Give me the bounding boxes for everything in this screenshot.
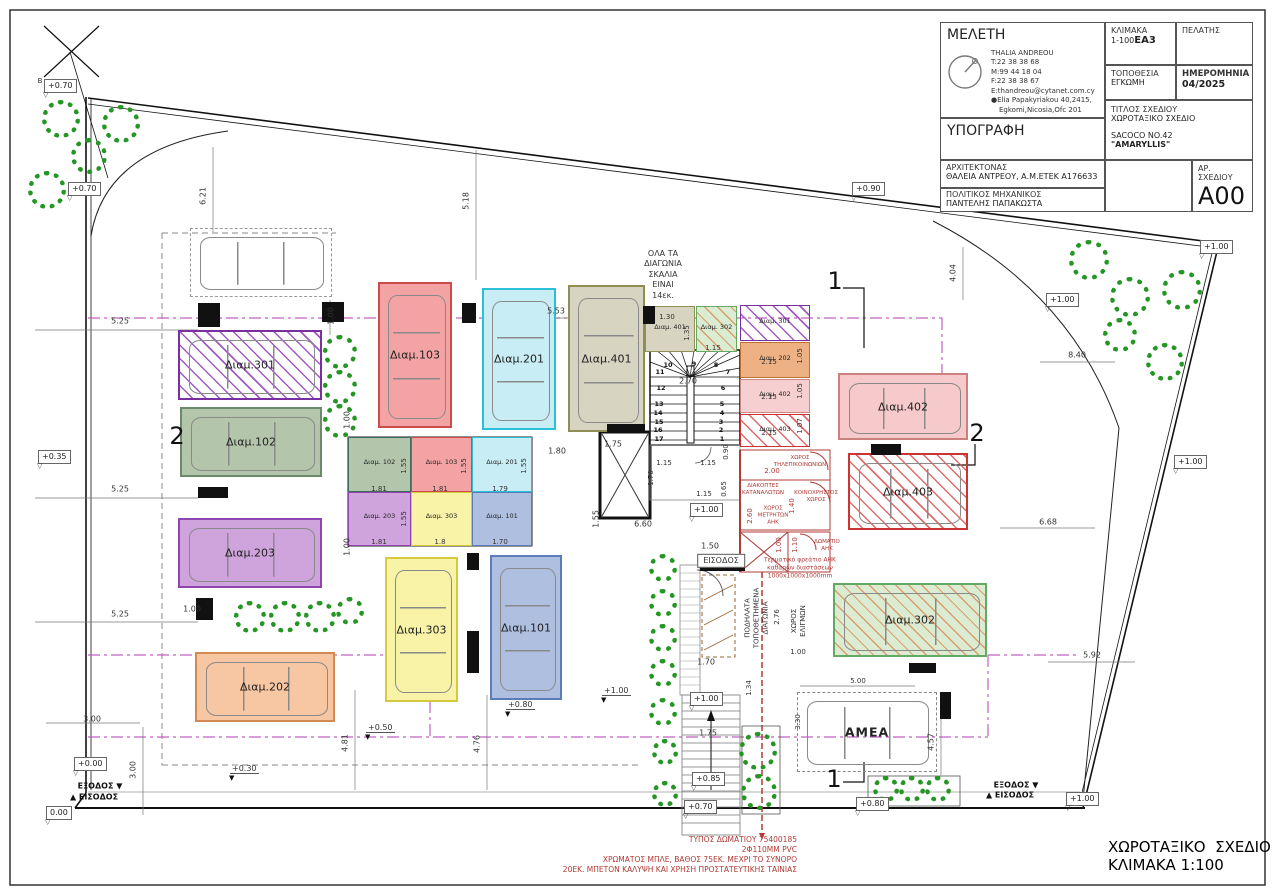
engineer-label: ΠΟΛΙΤΙΚΟΣ ΜΗΧΑΝΙΚΟΣ bbox=[946, 190, 1099, 199]
date-label: ΗΜΕΡΟΜΗΝΙΑ bbox=[1182, 69, 1247, 79]
dimension-label: 1.35 bbox=[683, 325, 691, 341]
stair-step-number: 9 bbox=[692, 360, 697, 368]
firm-email: E:thandreou@cytanet.com.cy bbox=[991, 87, 1095, 96]
dimension-label: 1.00 bbox=[183, 605, 201, 614]
parking-space-label: Διαμ.403 bbox=[883, 485, 933, 498]
section-marker: 1 bbox=[827, 267, 842, 295]
dimension-label: 2.60 bbox=[746, 508, 754, 524]
stair-step-number: 3 bbox=[719, 418, 724, 426]
meleti-label: ΜΕΛΕΤΗ bbox=[947, 27, 1005, 43]
stair-step-number: 8 bbox=[714, 361, 719, 369]
plan-scale: ΚΛΙΜΑΚΑ 1:100 bbox=[1108, 856, 1224, 874]
dimension-label: 1.50 bbox=[701, 542, 719, 551]
titleblock-sheet-cell: ΑΡ. ΣΧΕΔΙΟΥ A00 bbox=[1192, 160, 1253, 212]
drawing-title-value: ΧΩΡΟΤΑΞΙΚΟ ΣΧΕΔΙΟ bbox=[1111, 114, 1247, 123]
wall-column bbox=[467, 553, 479, 570]
tree-icon bbox=[42, 100, 80, 138]
plan-title: ΧΩΡΟΤΑΞΙΚΟ ΣΧΕΔΙΟ bbox=[1108, 838, 1271, 856]
parking-space-p401: Διαμ.401 bbox=[568, 285, 645, 432]
dimension-label: 1.15 bbox=[700, 459, 716, 467]
dimension-label: 1.70 bbox=[492, 538, 508, 546]
parking-space-p202: Διαμ.202 bbox=[195, 652, 335, 722]
level-marker: +1.00 bbox=[690, 503, 723, 517]
direction-label: ΕΞΟΔΟΣ ▼ bbox=[994, 781, 1039, 790]
storage-room-label: Διαμ. 101 bbox=[486, 512, 518, 520]
dimension-label: 0.90 bbox=[722, 444, 730, 460]
wall-column bbox=[198, 303, 220, 327]
parking-space-p203: Διαμ.203 bbox=[178, 518, 322, 588]
tree-icon bbox=[899, 776, 925, 802]
tree-icon bbox=[323, 370, 357, 404]
dimension-label: 1.55 bbox=[460, 458, 468, 474]
dimension-label: 1.81 bbox=[371, 485, 387, 493]
tree-icon bbox=[28, 171, 66, 209]
dimension-label: 3.00 bbox=[129, 761, 138, 779]
level-marker: 0.00 bbox=[46, 806, 72, 820]
firm-address1: Elia Papakyriakou 40,2415, bbox=[997, 96, 1092, 104]
sheet-number: A00 bbox=[1198, 182, 1247, 210]
level-marker: +1.00 bbox=[1066, 792, 1099, 806]
note-text-n8: ΧΩΡΟΣΜΕΤΡΗΤΩΝΑΗΚ bbox=[758, 505, 789, 526]
stair-step-number: 7 bbox=[726, 368, 731, 376]
dimension-label: 1.05 bbox=[796, 383, 804, 399]
level-marker: +1.00 bbox=[1174, 455, 1207, 469]
firm-contact-block: THALIA ANDREOU T:22 38 38 68 M:99 44 18 … bbox=[991, 49, 1095, 115]
note-text-n6: ΔΙΑΚΟΠΤΕΣΚΑΤΑΝΑΛΩΤΩΝ bbox=[742, 483, 784, 497]
storage-room-label: Διαμ. 102 bbox=[364, 458, 396, 466]
storage-room-label: Διαμ. 201 bbox=[486, 458, 518, 466]
dimension-label: 6.68 bbox=[1039, 518, 1057, 527]
tree-icon bbox=[234, 601, 266, 633]
parking-space-p402: Διαμ.402 bbox=[838, 373, 968, 440]
storage-room-label: Διαμ. 203 bbox=[364, 512, 396, 520]
tree-icon bbox=[1146, 343, 1184, 381]
note-text-n1: ΟΛΑ ΤΑΔΙΑΓΩΝΙΑΣΚΑΛΙΑΕΙΝΑΙ14εκ. bbox=[644, 249, 682, 301]
client-label: ΠΕΛΑΤΗΣ bbox=[1182, 26, 1247, 35]
titleblock-scale-cell: ΚΛΙΜΑΚΑ 1-100ΕΑ3 bbox=[1105, 22, 1176, 65]
firm-address2: Egkomi,Nicosia,Ofc 201 bbox=[991, 106, 1095, 115]
wall-column bbox=[643, 306, 655, 324]
dimension-label: 5.25 bbox=[111, 610, 129, 619]
dimension-label: 1.80 bbox=[548, 447, 566, 456]
dimension-label: 1.79 bbox=[492, 485, 508, 493]
dimension-label: 2.15 bbox=[761, 358, 777, 366]
parking-space-p403: Διαμ.403 bbox=[848, 453, 968, 530]
storage-room-label: Διαμ. 301 bbox=[759, 317, 791, 325]
tree-icon bbox=[323, 404, 357, 438]
parking-space-label: ΑΜΕΑ bbox=[845, 725, 889, 740]
level-marker: +0.35 bbox=[38, 450, 71, 464]
storage-room-label: Διαμ. 401 bbox=[654, 323, 686, 331]
level-marker: +0.70 bbox=[684, 800, 717, 814]
stair-step-number: 15 bbox=[654, 418, 663, 426]
dimension-label: 1.00 bbox=[775, 537, 783, 553]
dimension-label: 1.30 bbox=[659, 313, 675, 321]
wall-column bbox=[462, 303, 476, 323]
side-stair-bike-area bbox=[680, 565, 735, 695]
external-stair bbox=[682, 695, 740, 835]
dimension-label: 1.8 bbox=[434, 538, 445, 546]
scale-label: ΚΛΙΜΑΚΑ bbox=[1111, 26, 1170, 35]
parking-space-label: Διαμ.301 bbox=[225, 359, 275, 372]
dimension-label: 1.81 bbox=[432, 485, 448, 493]
dimension-label: 5.25 bbox=[111, 317, 129, 326]
direction-label: ▲ ΕΙΣΟΔΟΣ bbox=[986, 791, 1034, 800]
stair-step-number: 5 bbox=[720, 400, 725, 408]
dimension-label: 1.15 bbox=[696, 490, 712, 498]
wall-column bbox=[909, 663, 936, 673]
dimension-label: 1.75 bbox=[604, 440, 622, 449]
dimension-label: 0.65 bbox=[720, 481, 728, 497]
titleblock-location-cell: ΤΟΠΟΘΕΣΙΑ ΕΓΚΩΜΗ bbox=[1105, 65, 1176, 100]
titleblock-signature-cell: ΥΠΟΓΡΑΦΗ bbox=[940, 118, 1105, 160]
dimension-label: 1.07 bbox=[796, 418, 804, 434]
dimension-label: 2.15 bbox=[761, 393, 777, 401]
dimension-label: 1.55 bbox=[400, 511, 408, 527]
parking-space-p101: Διαμ.101 bbox=[490, 555, 562, 700]
dimension-label: 4.76 bbox=[473, 735, 482, 753]
parking-space-label: Διαμ.101 bbox=[501, 621, 551, 634]
dimension-label: 1.81 bbox=[371, 538, 387, 546]
note-text-n9: ΔΩΜΑΤΙΟΑΗΚ bbox=[814, 539, 840, 553]
dimension-label: 1.00 bbox=[343, 411, 352, 429]
stair-step-number: 10 bbox=[663, 361, 672, 369]
dimension-label: 1.00 bbox=[343, 538, 352, 556]
wall-column bbox=[607, 424, 645, 433]
parking-space-label: Διαμ.402 bbox=[878, 400, 928, 413]
tree-icon bbox=[1110, 277, 1150, 317]
engineer-name: ΠΑΝΤΕΛΗΣ ΠΑΠΑΚΩΣΤΑ bbox=[946, 199, 1099, 208]
parking-space-label: Διαμ.202 bbox=[240, 681, 290, 694]
dimension-label: 6.21 bbox=[199, 187, 208, 205]
note-text-n11: ΤΥΠΟΣ ΔΩΜΑΤΙΟΥ 754001852Φ110ΜΜ PVCΧΡΩΜΑΤ… bbox=[563, 835, 797, 876]
note-text-n7: ΚΟΙΝΟΧΡΗΣΤΟΣΧΩΡΟΣ bbox=[794, 490, 838, 504]
level-marker: +0.50 bbox=[366, 723, 395, 733]
level-marker: +0.85 bbox=[692, 772, 725, 786]
dimension-label: 1.15 bbox=[705, 344, 721, 352]
dimension-label: 3.30 bbox=[794, 714, 802, 730]
tree-icon bbox=[925, 776, 951, 802]
scale-stamp: ΕΑ3 bbox=[1134, 35, 1156, 46]
scale-value: 1-100 bbox=[1111, 36, 1134, 45]
storage-room-label: Διαμ. 302 bbox=[701, 323, 733, 331]
stair-step-number: 6 bbox=[721, 384, 726, 392]
section-marker: 2 bbox=[169, 422, 184, 450]
parking-space-p201: Διαμ.201 bbox=[482, 288, 556, 430]
section-marker: B bbox=[38, 77, 43, 85]
dimension-label: 8.40 bbox=[1068, 351, 1086, 360]
dimension-label: 1.75 bbox=[699, 729, 717, 738]
stair-step-number: 14 bbox=[653, 409, 662, 417]
tree-icon bbox=[1069, 240, 1109, 280]
location-value: ΕΓΚΩΜΗ bbox=[1111, 78, 1170, 87]
level-marker: +1.00 bbox=[1200, 240, 1233, 254]
titleblock-client-cell: ΠΕΛΑΤΗΣ bbox=[1176, 22, 1253, 65]
note-text-n4: ΧΩΡΟΣΕΛΙΓΜΩΝ bbox=[790, 605, 808, 637]
parking-space-label: Διαμ.103 bbox=[390, 349, 440, 362]
section-marker: 1 bbox=[826, 765, 841, 793]
level-marker: +1.00 bbox=[690, 692, 723, 706]
parking-space-label: Διαμ.201 bbox=[494, 353, 544, 366]
level-marker: +1.00 bbox=[1046, 293, 1079, 307]
project-name-line1: SACOCO NO.42 bbox=[1111, 131, 1247, 140]
titleblock-engineer-cell: ΠΟΛΙΤΙΚΟΣ ΜΗΧΑΝΙΚΟΣ ΠΑΝΤΕΛΗΣ ΠΑΠΑΚΩΣΤΑ bbox=[940, 188, 1105, 212]
dimension-label: 1.70 bbox=[647, 470, 655, 486]
firm-mobile: M:99 44 18 04 bbox=[991, 68, 1095, 77]
tree-icon bbox=[336, 597, 364, 625]
tree-icon bbox=[269, 601, 301, 633]
level-marker: +0.00 bbox=[74, 757, 107, 771]
stair-step-number: 11 bbox=[655, 368, 664, 376]
level-marker: +0.70 bbox=[68, 182, 101, 196]
dimension-label: 1.34 bbox=[745, 680, 753, 696]
firm-phone: T:22 38 38 68 bbox=[991, 58, 1095, 67]
dimension-label: 4.04 bbox=[949, 264, 958, 282]
parking-space-p303: Διαμ.303 bbox=[385, 557, 458, 702]
tree-icon bbox=[741, 774, 777, 810]
wall-column bbox=[940, 692, 951, 719]
tree-icon bbox=[739, 732, 777, 770]
tree-icon bbox=[71, 138, 107, 174]
dimension-label: 3.00 bbox=[83, 715, 101, 724]
level-marker: +0.30 bbox=[230, 764, 259, 774]
tree-icon bbox=[102, 105, 140, 143]
direction-label: ΕΞΟΔΟΣ ▼ bbox=[78, 782, 123, 791]
dimension-label: 5.53 bbox=[547, 307, 565, 316]
dimension-label: 1.55 bbox=[592, 510, 601, 528]
note-text-n3: ΠΟΔΗΛΑΤΑΤΟΠΟΘΕΤΗΜΕΝΑΔΙΑΓΩΝΙΑ bbox=[743, 588, 770, 649]
firm-fax: F:22 38 38 67 bbox=[991, 77, 1095, 86]
parking-space-label: Διαμ.203 bbox=[225, 547, 275, 560]
note-text-n10: Τερματικό φρεάτιο ΑΗΚκαθαρών διαστάσεων1… bbox=[764, 556, 836, 579]
car-icon bbox=[200, 237, 324, 290]
stair-step-number: 1 bbox=[720, 435, 725, 443]
titleblock-title-cell: ΤΙΤΛΟΣ ΣΧΕΔΙΟΥ ΧΩΡΟΤΑΞΙΚΟ ΣΧΕΔΙΟ SACOCO … bbox=[1105, 100, 1253, 160]
tree-icon bbox=[649, 698, 677, 726]
section-marker: 2 bbox=[969, 419, 984, 447]
stair-step-number: 17 bbox=[654, 435, 663, 443]
dimension-label: 2.70 bbox=[679, 377, 697, 386]
parking-space-p102: Διαμ.102 bbox=[180, 407, 322, 477]
dimension-label: 2.15 bbox=[761, 429, 777, 437]
level-marker: +0.70 bbox=[44, 79, 77, 93]
dimension-label: 5.00 bbox=[850, 677, 866, 685]
dimension-label: 1.55 bbox=[520, 458, 528, 474]
tree-icon bbox=[649, 624, 677, 652]
level-marker: +1.00 bbox=[602, 686, 631, 696]
parking-space-p301: Διαμ.301 bbox=[178, 330, 322, 400]
parking-space-label: Διαμ.102 bbox=[226, 436, 276, 449]
dimension-label: 1.10 bbox=[791, 537, 799, 553]
location-label: ΤΟΠΟΘΕΣΙΑ bbox=[1111, 69, 1170, 78]
dimension-label: 6.60 bbox=[634, 520, 652, 529]
dimension-label: 2.76 bbox=[773, 609, 781, 625]
architect-label: ΑΡΧΙΤΕΚΤΟΝΑΣ bbox=[946, 163, 1099, 172]
parking-space-label: Διαμ.401 bbox=[582, 352, 632, 365]
titleblock-empty-cell bbox=[1105, 160, 1192, 212]
dimension-label: 4.81 bbox=[341, 734, 350, 752]
tree-icon bbox=[649, 589, 677, 617]
dimension-label: 1.55 bbox=[400, 458, 408, 474]
parking-space-pamea: ΑΜΕΑ bbox=[797, 692, 937, 772]
titleblock-meleti-cell: ΜΕΛΕΤΗ THALIA ANDREOU T:22 38 38 68 M:99… bbox=[940, 22, 1105, 118]
dimension-label: 1.70 bbox=[697, 658, 715, 667]
dimension-label: 1.15 bbox=[656, 459, 672, 467]
stair-step-number: 16 bbox=[653, 426, 662, 434]
titleblock-architect-cell: ΑΡΧΙΤΕΚΤΟΝΑΣ ΘΑΛΕΙΑ ΑΝΤΡΕΟΥ, Α.Μ.ΕΤΕΚ Α1… bbox=[940, 160, 1105, 188]
tree-icon bbox=[652, 781, 678, 807]
sheet-label: ΑΡ. ΣΧΕΔΙΟΥ bbox=[1198, 164, 1247, 182]
level-marker: +0.80 bbox=[856, 797, 889, 811]
dimension-label: 5.18 bbox=[462, 192, 471, 210]
tree-icon bbox=[649, 659, 677, 687]
parking-space-pghost bbox=[190, 228, 332, 297]
dimension-label: 1.00 bbox=[327, 307, 336, 325]
date-value: 04/2025 bbox=[1182, 79, 1247, 90]
titleblock-date-cell: ΗΜΕΡΟΜΗΝΙΑ 04/2025 bbox=[1176, 65, 1253, 100]
tree-icon bbox=[304, 601, 336, 633]
dimension-label: 1.05 bbox=[796, 348, 804, 364]
dimension-label: 4.57 bbox=[927, 733, 936, 751]
direction-label: ▲ ΕΙΣΟΔΟΣ bbox=[70, 793, 118, 802]
tree-icon bbox=[323, 335, 357, 369]
stair-step-number: 2 bbox=[719, 426, 724, 434]
parking-space-label: Διαμ.302 bbox=[885, 614, 935, 627]
storage-room-s301: Διαμ. 301 bbox=[740, 305, 810, 341]
stair-step-number: 13 bbox=[654, 400, 663, 408]
storage-room-label: Διαμ. 303 bbox=[426, 512, 458, 520]
level-marker: +0.80 bbox=[506, 700, 535, 710]
note-text-n5: ΧΩΡΟΣΤΗΛΕΠΙΚΟΙΝΩΝΙΩΝ bbox=[774, 455, 826, 469]
level-marker: +0.90 bbox=[852, 182, 885, 196]
firm-name: THALIA ANDREOU bbox=[991, 49, 1095, 58]
wall-column bbox=[467, 631, 479, 673]
tree-icon bbox=[1103, 318, 1137, 352]
signature-label: ΥΠΟΓΡΑΦΗ bbox=[947, 123, 1024, 139]
site-plan-canvas: Διαμ.301Διαμ.102Διαμ.203Διαμ.202Διαμ.103… bbox=[0, 0, 1275, 895]
parking-space-p103: Διαμ.103 bbox=[378, 282, 452, 428]
firm-logo-icon bbox=[945, 51, 985, 91]
tree-icon bbox=[649, 554, 677, 582]
stair-step-number: 4 bbox=[720, 409, 725, 417]
project-name-line2: "AMARYLLIS" bbox=[1111, 140, 1247, 149]
architect-name: ΘΑΛΕΙΑ ΑΝΤΡΕΟΥ, Α.Μ.ΕΤΕΚ Α176633 bbox=[946, 172, 1099, 181]
dimension-label: 5.25 bbox=[111, 485, 129, 494]
parking-space-label: Διαμ.303 bbox=[397, 623, 447, 636]
parking-space-p302: Διαμ.302 bbox=[833, 583, 987, 657]
dimension-label: 5.92 bbox=[1083, 651, 1101, 660]
storage-room-label: Διαμ. 103 bbox=[426, 458, 458, 466]
dimension-label: 1.00 bbox=[790, 648, 806, 656]
tree-icon bbox=[1162, 270, 1202, 310]
stair-step-number: 12 bbox=[656, 384, 665, 392]
note-text-n2: ΕΙΣΟΔΟΣ bbox=[697, 554, 745, 568]
drawing-title-label: ΤΙΤΛΟΣ ΣΧΕΔΙΟΥ bbox=[1111, 105, 1247, 114]
tree-icon bbox=[652, 739, 678, 765]
wall-column bbox=[871, 444, 901, 455]
wall-column bbox=[198, 487, 228, 498]
